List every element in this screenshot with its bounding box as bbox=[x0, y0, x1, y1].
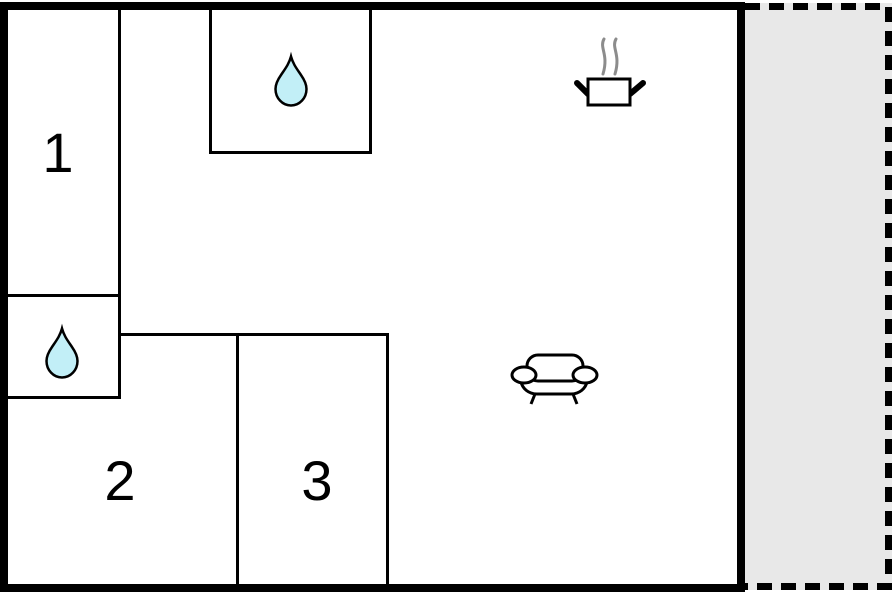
wall-bathroom-top-bottom bbox=[209, 151, 372, 154]
wall-bathroom-top-left bbox=[209, 10, 212, 154]
wall-bathroom-left-top bbox=[8, 294, 118, 297]
water-drop-shape bbox=[276, 57, 307, 106]
water-drop-shape bbox=[47, 329, 78, 378]
water-drop-icon bbox=[45, 327, 79, 379]
sofa-leg bbox=[573, 394, 577, 404]
wall-rooms23-top bbox=[118, 333, 389, 336]
wall-room1-right bbox=[118, 10, 121, 399]
sofa-armrest-right bbox=[573, 367, 597, 383]
steam-line bbox=[615, 39, 617, 74]
room-3-label: 3 bbox=[277, 450, 357, 512]
steam-line bbox=[603, 39, 605, 74]
cooking-pot-icon bbox=[570, 36, 650, 108]
terrace-area bbox=[745, 3, 892, 590]
floor-plan: 1 2 3 bbox=[0, 0, 896, 597]
pot-handle-left bbox=[577, 83, 588, 94]
wall-bathroom-left-bottom bbox=[8, 396, 121, 399]
wall-room2-room3-divider bbox=[236, 333, 239, 584]
wall-room3-right bbox=[386, 333, 389, 584]
water-drop-icon bbox=[274, 55, 308, 107]
pot-body bbox=[588, 79, 630, 105]
room-2-label: 2 bbox=[80, 450, 160, 512]
pot-handle-right bbox=[630, 83, 643, 94]
sofa-armrest-left bbox=[512, 367, 536, 383]
sofa-leg bbox=[531, 394, 535, 404]
sofa-icon bbox=[508, 348, 600, 406]
wall-bathroom-top-right bbox=[369, 10, 372, 154]
room-1-label: 1 bbox=[18, 122, 98, 184]
